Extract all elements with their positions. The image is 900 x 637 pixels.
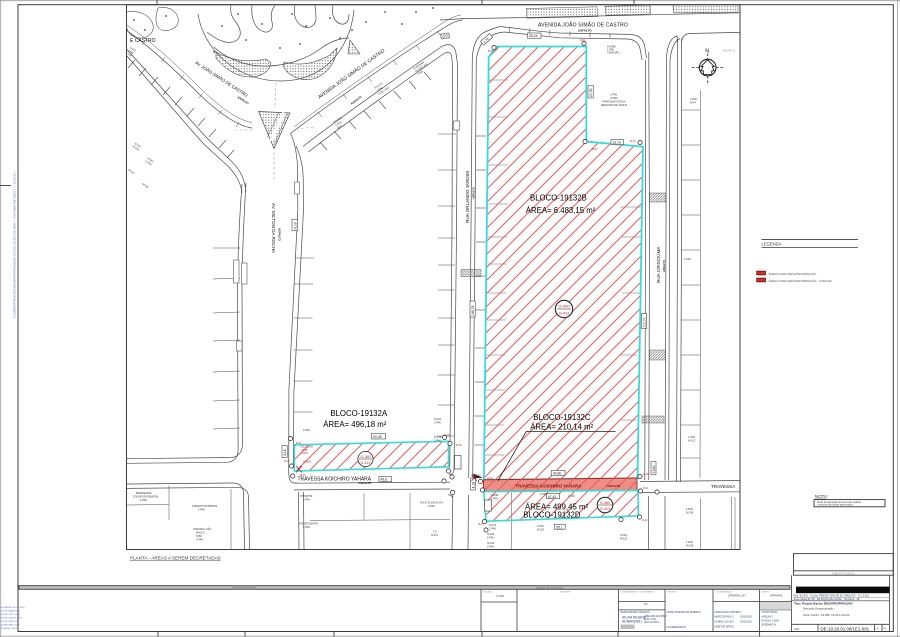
svg-text:ASFALTO: ASFALTO: [472, 187, 476, 199]
svg-text:ÁREAS PARA DESAPROPRIAÇÃO: ÁREAS PARA DESAPROPRIAÇÃO: [769, 271, 817, 276]
svg-text:2 PAV.: 2 PAV.: [303, 428, 311, 432]
svg-text:47,43: 47,43: [548, 495, 557, 499]
svg-text:ASFALTO: ASFALTO: [662, 260, 666, 272]
svg-text:2 PAV.: 2 PAV.: [491, 497, 499, 501]
svg-text:M-12: M-12: [642, 519, 648, 522]
svg-text:ASFALTO: ASFALTO: [578, 29, 592, 33]
svg-text:06 EMITIDO 09/21: 06 EMITIDO 09/21: [1, 628, 17, 630]
svg-text:M-15: M-15: [456, 444, 462, 447]
svg-text:2 PAV.: 2 PAV.: [487, 545, 495, 549]
svg-text:PLANTA - ÁREAS A SEREM DECRETA: PLANTA - ÁREAS A SEREM DECRETADAS: [130, 555, 221, 561]
svg-text:2 PAV.: 2 PAV.: [303, 498, 311, 502]
svg-text:M-01: M-01: [488, 50, 494, 53]
svg-text:55,1: 55,1: [556, 525, 563, 529]
svg-text:Nº183: Nº183: [141, 182, 150, 190]
svg-text:M-03: M-03: [592, 148, 598, 151]
svg-text:Nº122: Nº122: [688, 439, 696, 443]
svg-text:ADNAN(461): ADNAN(461): [622, 620, 642, 624]
svg-text:9752/9753/9754: 9752/9753/9754: [299, 522, 318, 526]
svg-text:BLOCO-19132D: BLOCO-19132D: [523, 511, 581, 520]
svg-text:Nº187: Nº187: [434, 417, 442, 421]
svg-text:110,00: 110,00: [643, 317, 647, 327]
svg-text:1 PAV.: 1 PAV.: [686, 540, 694, 544]
svg-text:Nº122: Nº122: [620, 537, 628, 541]
svg-text:9755/9756: 9755/9756: [300, 494, 313, 498]
svg-text:03 REV. QUADRO 06/21: 03 REV. QUADRO 06/21: [1, 617, 22, 620]
svg-text:49,80: 49,80: [553, 472, 562, 476]
svg-text:SUBSTITUI A DE-XX: SUBSTITUI A DE-XX: [832, 572, 855, 575]
svg-text:N: N: [705, 49, 709, 55]
svg-text:LEVANTAMENTO TOPOGRÁFICO: LEVANTAMENTO TOPOGRÁFICO: [621, 591, 655, 594]
svg-text:M-11: M-11: [643, 487, 649, 490]
svg-text:PROJETO: PROJETO: [667, 592, 678, 594]
svg-text:4 PAV.: 4 PAV.: [196, 538, 204, 542]
svg-text:G-360: G-360: [361, 455, 371, 459]
svg-text:M-20: M-20: [284, 460, 290, 463]
svg-text:DIRETOR DPROJ: DIRETOR DPROJ: [715, 626, 735, 629]
svg-text:50,28: 50,28: [373, 435, 382, 439]
svg-text:M-02: M-02: [580, 39, 586, 42]
svg-text:COORDENADOR: COORDENADOR: [667, 626, 686, 629]
svg-text:Obra: 01234 - 19.088. 19-05-Lt: Obra: 01234 - 19.088. 19-05-Lt-6/132: [803, 613, 850, 617]
svg-text:19,80: 19,80: [652, 465, 656, 474]
svg-text:9755/9757/9759/9760: 9755/9757/9759/9760: [192, 504, 218, 508]
svg-text:Nº124: Nº124: [489, 523, 497, 527]
svg-text:G-360: G-360: [600, 501, 610, 505]
svg-text:6,09: 6,09: [294, 222, 298, 229]
svg-text:Nº74: Nº74: [690, 101, 696, 105]
svg-text:M-14: M-14: [475, 474, 481, 477]
svg-text:ASFALTO: ASFALTO: [607, 484, 621, 488]
svg-text:ESCALA 1:1000: ESCALA 1:1000: [762, 620, 780, 623]
svg-text:Nº132: Nº132: [487, 532, 495, 536]
svg-text:OPRAPIL/GT: OPRAPIL/GT: [728, 594, 746, 598]
svg-text:SENHORA DE JESUS: SENHORA DE JESUS: [601, 103, 627, 107]
svg-text:PAULO: PAULO: [196, 531, 205, 535]
svg-text:ORIGINAL SÃO: ORIGINAL SÃO: [193, 526, 212, 531]
svg-text:FL: FL: [884, 627, 888, 631]
svg-text:2 PAV.: 2 PAV.: [620, 533, 628, 537]
svg-text:BLOCO-19132B: BLOCO-19132B: [530, 194, 587, 203]
svg-text:146,74: 146,74: [471, 306, 475, 316]
svg-text:2 PAV.: 2 PAV.: [487, 536, 495, 540]
svg-text:ASFALTO: ASFALTO: [359, 481, 373, 485]
svg-text:TRAVESSA KOICHIRO YAHARA: TRAVESSA KOICHIRO YAHARA: [515, 483, 582, 488]
svg-text:NOME ASSINATURA RUBRICA: NOME ASSINATURA RUBRICA: [667, 611, 701, 614]
svg-text:o decreto não utilizar para pr: o decreto não utilizar para projeto.: [817, 504, 854, 507]
svg-text:1 PAV.: 1 PAV.: [684, 257, 692, 261]
svg-text:ARQUIVO: ARQUIVO: [762, 616, 773, 619]
svg-text:Nº120: Nº120: [537, 528, 545, 532]
svg-text:G-413: G-413: [600, 507, 610, 511]
svg-text:OPRAPIL: OPRAPIL: [770, 594, 783, 598]
svg-text:15/03/2021: 15/03/2021: [740, 616, 753, 619]
svg-text:49,6: 49,6: [381, 478, 388, 482]
svg-text:ASFALTO: ASFALTO: [278, 228, 282, 242]
svg-text:GRUPO: GRUPO: [762, 592, 770, 594]
svg-text:MERCEARIA: MERCEARIA: [136, 491, 152, 495]
svg-text:2 PAV.: 2 PAV.: [434, 421, 442, 425]
svg-text:4,18: 4,18: [283, 449, 287, 456]
svg-text:2 PAV.: 2 PAV.: [428, 504, 436, 508]
svg-text:M-21: M-21: [296, 442, 302, 445]
svg-text:Área urbana km 25 · ESTAÇÃO DE: Área urbana km 25 · ESTAÇÃO DE CANAL · S…: [794, 598, 860, 601]
svg-text:AV. MILTON DA ROCHA: AV. MILTON DA ROCHA: [271, 203, 276, 254]
svg-text:M-13: M-13: [487, 477, 493, 480]
svg-text:04 REV. FINAL 07/21: 04 REV. FINAL 07/21: [1, 620, 19, 623]
svg-text:Nº127: Nº127: [431, 533, 439, 537]
svg-text:ÁREA= 496,18 m²: ÁREA= 496,18 m²: [323, 420, 386, 429]
svg-text:1 PAV.: 1 PAV.: [568, 494, 576, 498]
svg-text:E CASTRO: E CASTRO: [130, 38, 156, 44]
svg-text:M-16: M-16: [444, 434, 450, 437]
svg-text:Nº128: Nº128: [686, 544, 694, 548]
svg-text:ASFALTO: ASFALTO: [237, 95, 251, 106]
svg-text:2 PAV.: 2 PAV.: [302, 452, 309, 455]
svg-text:15/03/2021: 15/03/2021: [740, 621, 753, 624]
svg-text:9761/9763/9765/9766: 9761/9763/9765/9766: [133, 495, 159, 499]
svg-text:28,24: 28,24: [529, 34, 538, 38]
svg-text:T.U.: T.U.: [433, 530, 438, 534]
svg-text:Tipo: Projeto Básico DESA: Tipo: Projeto Básico DESAPROPRIAÇÃO: [794, 601, 853, 606]
svg-text:AS: AS: [644, 602, 648, 606]
svg-text:2 PAV.: 2 PAV.: [140, 498, 148, 502]
svg-text:ÁREAS PARA DESAPROPRIAÇÃO - JU: ÁREAS PARA DESAPROPRIAÇÃO - JUDICIAL: [769, 278, 833, 283]
svg-text:20,95: 20,95: [589, 88, 593, 97]
svg-text:2 PAV.: 2 PAV.: [537, 524, 545, 528]
svg-text:01 REV. ÁREAS 04/21: 01 REV. ÁREAS 04/21: [1, 610, 20, 613]
svg-text:CAD: CAD: [794, 628, 799, 631]
svg-text:APROVAÇÃO PROJETO: APROVAÇÃO PROJETO: [715, 611, 742, 614]
svg-text:G-412: G-412: [361, 461, 371, 465]
svg-text:DESENHO: DESENHO: [560, 592, 571, 594]
svg-text:ÁREA= 6.483,15 m²: ÁREA= 6.483,15 m²: [526, 206, 596, 215]
svg-text:Nº134: Nº134: [487, 541, 495, 545]
svg-text:02 REV. TEXTO 05/21: 02 REV. TEXTO 05/21: [1, 614, 20, 616]
svg-text:M-04: M-04: [630, 140, 636, 143]
svg-text:Nº187: Nº187: [127, 168, 136, 176]
svg-text:BLOCO-19132A: BLOCO-19132A: [330, 409, 388, 418]
svg-text:2 PAV.: 2 PAV.: [198, 508, 206, 512]
svg-text:2 PAV.: 2 PAV.: [540, 492, 548, 496]
svg-text:G-300: G-300: [558, 304, 570, 309]
svg-text:RESPONSÁVEL TÉCNICO: RESPONSÁVEL TÉCNICO: [621, 611, 650, 614]
svg-text:M-10: M-10: [643, 473, 649, 476]
svg-text:Nº159: Nº159: [434, 435, 442, 439]
svg-text:AVENIDA JOÃO SIMÃO DE CASTRO: AVENIDA JOÃO SIMÃO DE CASTRO: [538, 22, 628, 29]
svg-text:MARCOS PAULO: MARCOS PAULO: [715, 616, 734, 619]
svg-text:350344.23: 350344.23: [723, 49, 736, 53]
svg-text:ÁREA= 210,14 m²: ÁREA= 210,14 m²: [530, 422, 593, 431]
svg-text:00 EMISSÃO INICIAL 03/21: 00 EMISSÃO INICIAL 03/21: [1, 606, 25, 609]
svg-text:DE-19.20.01.00/1E1-001: DE-19.20.01.00/1E1-001: [821, 626, 870, 631]
svg-text:ASFALTO: ASFALTO: [350, 94, 363, 105]
svg-text:1 PAV.: 1 PAV.: [688, 435, 696, 439]
svg-text:ESCALA: ESCALA: [483, 591, 492, 594]
svg-text:G-411: G-411: [559, 311, 571, 316]
svg-text:2 PAV.: 2 PAV.: [489, 527, 497, 531]
svg-text:DESENHO Nº: DESENHO Nº: [762, 623, 777, 627]
svg-text:19,79: 19,79: [612, 141, 621, 145]
svg-text:MAT. 19.333-1: MAT. 19.333-1: [644, 621, 660, 624]
svg-text:Descrição Desapropriação: Descrição Desapropriação: [803, 607, 834, 611]
svg-text:05 APROVADO 08/21: 05 APROVADO 08/21: [1, 624, 19, 627]
svg-text:Nº83: Nº83: [196, 534, 202, 538]
svg-text:LEGENDA: LEGENDA: [762, 241, 782, 246]
svg-text:Nº138: Nº138: [686, 511, 694, 515]
svg-text:4,18: 4,18: [472, 482, 476, 489]
svg-text:1:1000: 1:1000: [496, 594, 504, 598]
svg-text:RUA CRISCIÚMA: RUA CRISCIÚMA: [655, 246, 661, 283]
svg-text:BLOCO-19132C: BLOCO-19132C: [533, 413, 591, 422]
svg-text:PREFEITURA MUNICIPAL: PREFEITURA MUNICIPAL: [536, 587, 564, 590]
svg-text:2 PAV.: 2 PAV.: [303, 525, 311, 529]
svg-text:TRAVESSA: TRAVESSA: [711, 484, 736, 489]
svg-text:M-17: M-17: [478, 523, 484, 526]
svg-text:r A: r A: [876, 627, 879, 631]
svg-text:NOTA:: NOTA:: [815, 494, 828, 499]
svg-text:Nº180A: Nº180A: [303, 460, 312, 464]
svg-text:2 PAV.: 2 PAV.: [610, 93, 618, 97]
svg-text:Nº540: Nº540: [610, 96, 618, 100]
svg-text:Nº137,Nº139,Nº141: Nº137,Nº139,Nº141: [420, 501, 443, 505]
svg-text:2 PAV.: 2 PAV.: [434, 439, 442, 443]
svg-text:C:\USERS\PROJETOS\DESAPROPRIAC: C:\USERS\PROJETOS\DESAPROPRIACAO\DE-19.2…: [13, 171, 17, 318]
svg-text:RUA ORLANDO JARDIM: RUA ORLANDO JARDIM: [465, 171, 470, 223]
svg-text:VISTO FISCAL: VISTO FISCAL: [762, 611, 779, 614]
svg-text:2 PAV.: 2 PAV.: [686, 507, 694, 511]
svg-text:Nº148: Nº148: [491, 493, 499, 497]
svg-text:DANIELA SOUZA: DANIELA SOUZA: [715, 621, 734, 624]
svg-text:2 PAV.: 2 PAV.: [690, 97, 698, 101]
